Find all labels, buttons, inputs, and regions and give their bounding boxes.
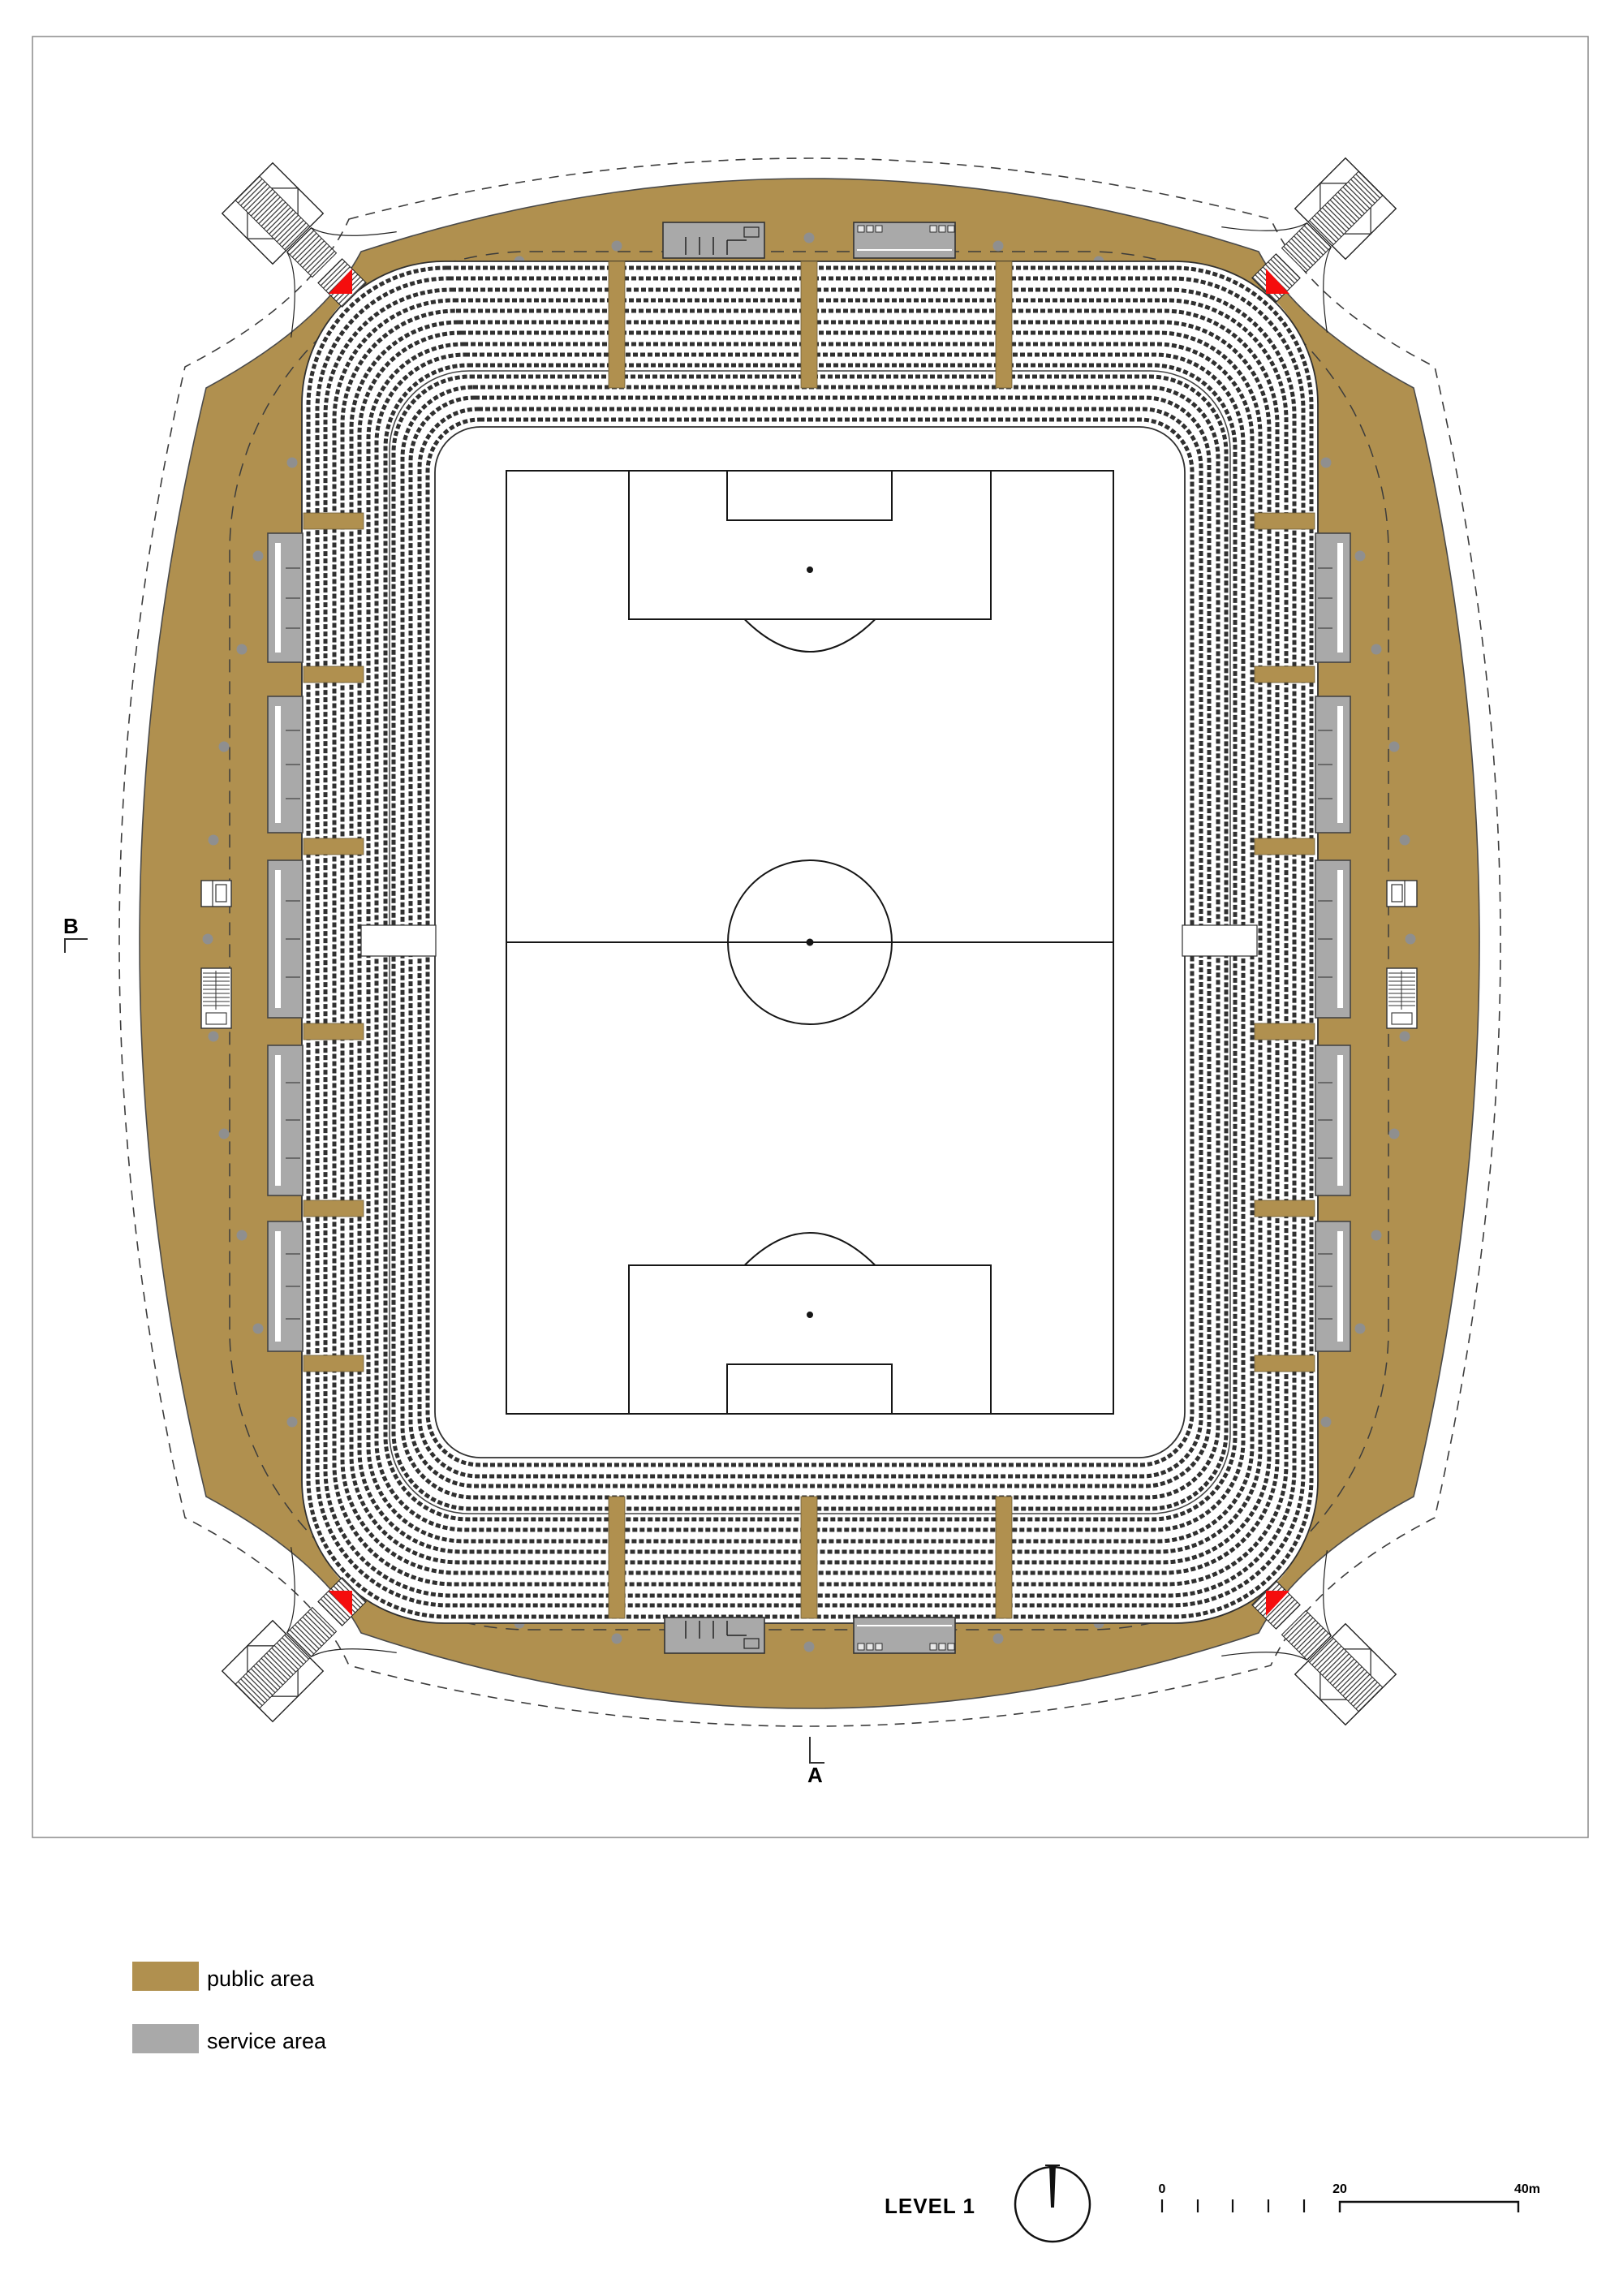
camera-platform-right (1182, 925, 1257, 956)
section-label-b: B (63, 914, 79, 938)
section-label-a: A (807, 1763, 823, 1787)
legend: public area service area (132, 1962, 327, 2053)
scale-label-0: 0 (1159, 2182, 1166, 2196)
section-marker-a: A (807, 1737, 824, 1787)
camera-platform-left (361, 925, 436, 956)
scale-bar: 0 20 40m (1159, 2182, 1540, 2212)
section-marker-b: B (63, 914, 88, 953)
north-arrow-icon (1015, 2165, 1090, 2242)
center-spot (807, 940, 813, 946)
legend-label-service-area: service area (207, 2029, 327, 2053)
legend-swatch-public-area (132, 1962, 199, 1991)
scale-label-20: 20 (1332, 2182, 1347, 2196)
level-title: LEVEL 1 (885, 2194, 975, 2218)
penalty-spot-bottom (807, 1312, 812, 1317)
stadium-plan-svg: B A public area service area LEVEL 1 0 2… (0, 0, 1623, 2296)
penalty-spot-top (807, 567, 812, 572)
legend-swatch-service-area (132, 2024, 199, 2053)
legend-label-public-area: public area (207, 1966, 315, 1991)
drawing-sheet: B A public area service area LEVEL 1 0 2… (0, 0, 1623, 2296)
scale-label-40m: 40m (1514, 2182, 1540, 2196)
